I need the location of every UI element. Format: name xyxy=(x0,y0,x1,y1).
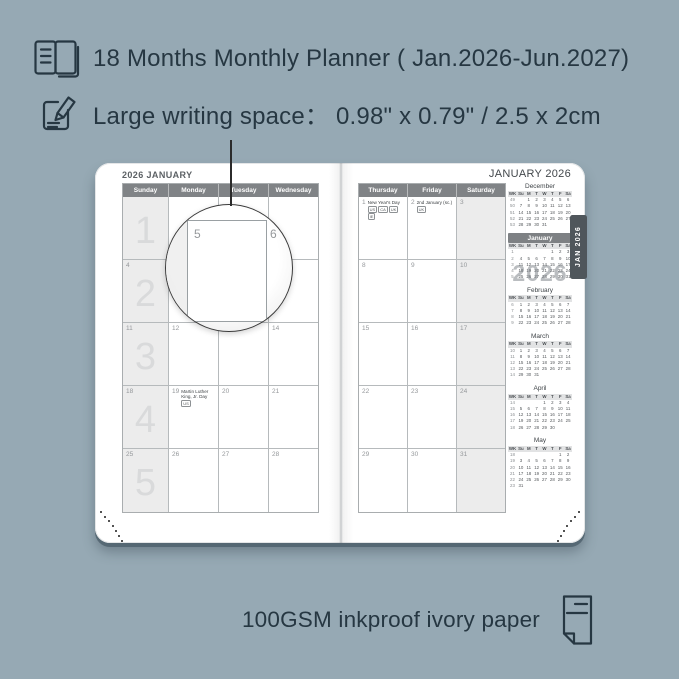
date-number: 4 xyxy=(126,262,130,269)
day-header-cell: Monday xyxy=(169,184,219,197)
day-header-cell: Wednesday xyxy=(269,184,318,197)
cell-content: 4 xyxy=(123,260,168,269)
holiday-badge: UK xyxy=(417,206,427,213)
mini-calendar-grid: WKSuMTWTFSa61234567789101112131481516171… xyxy=(508,295,572,326)
date-number: 10 xyxy=(460,262,467,269)
holiday-text: 2nd January (sc.) xyxy=(417,200,453,205)
mini-calendar: FebruaryWKSuMTWTFSa612345677891011121314… xyxy=(508,285,572,326)
calendar-day-cell: 29 xyxy=(359,449,408,512)
calendar-week-row: 293031 xyxy=(359,449,505,512)
mini-cal-date xyxy=(564,372,572,378)
day-header-row: ThursdayFridaySaturday xyxy=(359,184,505,197)
date-number: 21 xyxy=(272,388,279,395)
feature-line-planner-range: 18 Months Monthly Planner ( Jan.2026-Jun… xyxy=(32,38,629,80)
calendar-day-cell: 14 xyxy=(269,323,318,386)
date-number: 15 xyxy=(362,325,369,332)
corner-stitch-left xyxy=(118,535,120,537)
week-number-watermark: 5 xyxy=(123,455,168,512)
calendar-day-cell: 24 xyxy=(457,386,505,449)
calendar-day-cell: 1 xyxy=(123,197,169,260)
cell-content: 3 xyxy=(457,197,505,206)
feature-text-writing-space: Large writing space： 0.98" x 0.79" / 2.5… xyxy=(93,96,601,131)
mini-cal-date xyxy=(556,425,564,431)
calendar-week-row: 222324 xyxy=(359,386,505,449)
holiday-label: New Year's DayUSCAUKIE xyxy=(368,199,405,220)
cell-content: 15 xyxy=(359,323,407,332)
spread-spine xyxy=(329,163,353,543)
holiday-badge: US xyxy=(181,400,191,407)
mini-cal-date: 30 xyxy=(533,222,541,228)
right-month-grid: ThursdayFridaySaturday1New Year's DayUSC… xyxy=(358,183,506,513)
left-page-title: 2026 JANUARY xyxy=(122,170,193,180)
date-number: 17 xyxy=(460,325,467,332)
calendar-week-row: 1New Year's DayUSCAUKIE22nd January (sc.… xyxy=(359,197,505,260)
mini-calendar: MarchWKSuMTWTFSa101234567118910111213141… xyxy=(508,331,572,378)
mini-calendar-sidebar: DecemberWKSuMTWTFSa491234565078910111213… xyxy=(508,181,572,489)
cell-content xyxy=(169,197,218,199)
corner-stitch-right xyxy=(566,525,568,527)
mini-cal-date xyxy=(533,483,541,489)
cell-content: 11 xyxy=(123,323,168,332)
calendar-day-cell: 26 xyxy=(169,449,219,512)
calendar-week-row: 311121314 xyxy=(123,323,318,386)
cell-content: 23 xyxy=(408,386,456,395)
holiday-badge: CA xyxy=(378,206,388,213)
holiday-badges: UK xyxy=(417,207,428,212)
day-header-cell: Saturday xyxy=(457,184,505,197)
cell-content: 9 xyxy=(408,260,456,269)
cell-content: 16 xyxy=(408,323,456,332)
mini-cal-date: 28 xyxy=(533,425,541,431)
mini-cal-date: 31 xyxy=(541,222,549,228)
cell-content: 26 xyxy=(169,449,218,458)
mini-cal-date: 27 xyxy=(556,320,564,326)
corner-stitch-right xyxy=(557,540,559,542)
week-number-watermark: 1 xyxy=(123,203,168,259)
cell-content: 19Martin Luther King, Jr. DayUS xyxy=(169,386,218,407)
day-header-cell: Thursday xyxy=(359,184,408,197)
cell-content xyxy=(123,197,168,199)
mini-cal-week-number: 18 xyxy=(508,425,517,431)
day-header-row: SundayMondayTuesdayWednesday xyxy=(123,184,318,197)
mini-cal-date xyxy=(548,372,556,378)
cell-content: 17 xyxy=(457,323,505,332)
date-number: 1 xyxy=(362,199,366,220)
day-header-cell: Tuesday xyxy=(219,184,269,197)
corner-stitch-left xyxy=(115,530,117,532)
right-page-title: JANUARY 2026 xyxy=(489,168,571,180)
mini-cal-date xyxy=(548,222,556,228)
mini-cal-date: 28 xyxy=(564,320,572,326)
corner-stitch-right xyxy=(570,520,572,522)
mini-cal-date: 29 xyxy=(517,372,525,378)
calendar-week-row: 525262728 xyxy=(123,449,318,512)
corner-stitch-right xyxy=(578,511,580,513)
corner-stitch-left xyxy=(108,520,110,522)
day-header-cell: Friday xyxy=(408,184,457,197)
cell-content: 22 xyxy=(359,386,407,395)
mini-cal-date: 24 xyxy=(533,320,541,326)
cell-content: 31 xyxy=(457,449,505,458)
mini-calendar-title: January xyxy=(508,233,572,243)
paper-sheet-icon xyxy=(553,592,601,648)
mini-cal-date: 31 xyxy=(533,372,541,378)
mini-cal-date xyxy=(541,483,549,489)
cell-content: 28 xyxy=(269,449,318,458)
holiday-badges: USCAUKIE xyxy=(368,207,400,220)
mini-calendar-grid: WKSuMTWTFSa14123415567891011161213141516… xyxy=(508,394,572,431)
mini-calendar: AprilWKSuMTWTFSa141234155678910111612131… xyxy=(508,384,572,431)
cell-content: 25 xyxy=(123,449,168,458)
cell-content: 27 xyxy=(219,449,268,458)
date-number: 30 xyxy=(411,451,418,458)
calendar-day-cell: 30 xyxy=(408,449,457,512)
date-number: 9 xyxy=(411,262,415,269)
mini-cal-date xyxy=(541,372,549,378)
date-number: 28 xyxy=(272,451,279,458)
calendar-day-cell: 22 xyxy=(359,386,408,449)
mini-cal-date: 23 xyxy=(525,320,533,326)
corner-stitch-left xyxy=(100,511,102,513)
holiday-label: Martin Luther King, Jr. DayUS xyxy=(181,388,216,407)
mini-calendar-title: December xyxy=(508,181,572,191)
corner-stitch-left xyxy=(104,516,106,518)
cell-content: 24 xyxy=(457,386,505,395)
mini-calendar-grid: WKSuMTWTFSa18121934567892010111213141516… xyxy=(508,446,572,489)
week-number-watermark: 3 xyxy=(123,329,168,385)
corner-stitch-left xyxy=(121,540,123,542)
calendar-day-cell: 1New Year's DayUSCAUKIE xyxy=(359,197,408,260)
calendar-day-cell: 418 xyxy=(123,386,169,449)
corner-stitch-right xyxy=(574,516,576,518)
cell-content xyxy=(269,197,318,199)
calendar-day-cell: 16 xyxy=(408,323,457,386)
date-number: 27 xyxy=(222,451,229,458)
calendar-day-cell: 10 xyxy=(457,260,505,323)
calendar-day-cell: 31 xyxy=(457,449,505,512)
calendar-day-cell: 15 xyxy=(359,323,408,386)
calendar-day-cell: 12 xyxy=(169,323,219,386)
cell-content: 21 xyxy=(269,386,318,395)
holiday-badges: US xyxy=(181,401,192,406)
cell-content xyxy=(219,197,268,199)
week-number-watermark: 4 xyxy=(123,392,168,448)
date-number: 31 xyxy=(460,451,467,458)
magnifier-pointer-line xyxy=(230,140,232,206)
calendar-day-cell: 28 xyxy=(269,449,318,512)
calendar-day-cell: 23 xyxy=(408,386,457,449)
calendar-day-cell: 21 xyxy=(269,386,318,449)
product-image-canvas: 18 Months Monthly Planner ( Jan.2026-Jun… xyxy=(0,0,679,679)
mini-cal-date xyxy=(548,483,556,489)
week-number-watermark: 2 xyxy=(123,266,168,322)
mini-calendar-title: May xyxy=(508,436,572,446)
calendar-day-cell: 311 xyxy=(123,323,169,386)
mini-calendar-title: March xyxy=(508,331,572,341)
mini-cal-date: 26 xyxy=(548,320,556,326)
calendar-day-cell: 24 xyxy=(123,260,169,323)
magnified-sunday-column-shade xyxy=(166,205,187,331)
mini-cal-date: 27 xyxy=(525,425,533,431)
mini-cal-date xyxy=(556,222,564,228)
feature-text-planner-range: 18 Months Monthly Planner ( Jan.2026-Jun… xyxy=(93,45,629,73)
mini-cal-date: 25 xyxy=(541,320,549,326)
date-number: 8 xyxy=(362,262,366,269)
calendar-week-row: 41819Martin Luther King, Jr. DayUS2021 xyxy=(123,386,318,449)
feature-line-paper: 100GSM inkproof ivory paper xyxy=(242,592,601,648)
holiday-badge: UK xyxy=(389,206,399,213)
mini-calendar-grid: WKSuMTWTFSa10123456711891011121314121516… xyxy=(508,341,572,378)
cell-content: 14 xyxy=(269,323,318,332)
mini-calendar: MayWKSuMTWTFSa18121934567892010111213141… xyxy=(508,436,572,489)
mini-cal-week-number: 9 xyxy=(508,320,517,326)
date-number: 18 xyxy=(126,388,133,395)
magnified-date-5: 5 xyxy=(194,227,201,241)
date-number: 29 xyxy=(362,451,369,458)
mini-calendar-title: April xyxy=(508,384,572,394)
holiday-text: New Year's Day xyxy=(368,200,400,205)
holiday-badge: IE xyxy=(368,213,376,220)
year-watermark: 2026 xyxy=(500,260,580,287)
cell-content: 29 xyxy=(359,449,407,458)
mini-cal-date: 30 xyxy=(525,372,533,378)
cell-content: 8 xyxy=(359,260,407,269)
cell-content: 1New Year's DayUSCAUKIE xyxy=(359,197,407,220)
magnified-date-6: 6 xyxy=(270,227,277,241)
mini-cal-date xyxy=(525,483,533,489)
mini-cal-week-number: 53 xyxy=(508,222,517,228)
mini-calendar: DecemberWKSuMTWTFSa491234565078910111213… xyxy=(508,181,572,228)
calendar-day-cell: 525 xyxy=(123,449,169,512)
date-number: 11 xyxy=(126,325,133,332)
mini-cal-date: 29 xyxy=(525,222,533,228)
date-number: 3 xyxy=(460,199,464,206)
mini-cal-date: 29 xyxy=(541,425,549,431)
mini-cal-date: 26 xyxy=(517,425,525,431)
corner-stitch-right xyxy=(560,535,562,537)
cell-content: 20 xyxy=(219,386,268,395)
calendar-day-cell: 9 xyxy=(408,260,457,323)
date-number: 24 xyxy=(460,388,467,395)
date-number: 25 xyxy=(126,451,133,458)
cell-content: 10 xyxy=(457,260,505,269)
day-header-cell: Sunday xyxy=(123,184,169,197)
date-number: 2 xyxy=(411,199,415,213)
mini-cal-date: 28 xyxy=(517,222,525,228)
calendar-day-cell: 3 xyxy=(457,197,505,260)
mini-calendar-grid: WKSuMTWTFSa49123456507891011121351141516… xyxy=(508,191,572,228)
mini-cal-date xyxy=(556,483,564,489)
date-number: 20 xyxy=(222,388,229,395)
calendar-day-cell: 22nd January (sc.)UK xyxy=(408,197,457,260)
calendar-day-cell: 19Martin Luther King, Jr. DayUS xyxy=(169,386,219,449)
date-number: 16 xyxy=(411,325,418,332)
calendar-day-cell: 13 xyxy=(219,323,269,386)
holiday-label: 2nd January (sc.)UK xyxy=(417,199,454,213)
feature-line-writing-space: Large writing space： 0.98" x 0.79" / 2.5… xyxy=(38,92,601,134)
calendar-day-cell: 20 xyxy=(219,386,269,449)
mini-cal-date xyxy=(556,372,564,378)
date-number: 26 xyxy=(172,451,179,458)
holiday-text: Martin Luther King, Jr. Day xyxy=(181,389,208,400)
mini-cal-date xyxy=(564,425,572,431)
corner-stitch-right xyxy=(563,530,565,532)
corner-stitch-left xyxy=(112,525,114,527)
calendar-day-cell: 17 xyxy=(457,323,505,386)
writing-pencil-icon xyxy=(38,92,78,134)
cell-content: 18 xyxy=(123,386,168,395)
holiday-badge: US xyxy=(368,206,378,213)
feature-text-paper: 100GSM inkproof ivory paper xyxy=(242,607,540,633)
calendar-week-row: 8910 xyxy=(359,260,505,323)
mini-cal-week-number: 23 xyxy=(508,483,517,489)
mini-cal-date xyxy=(564,483,572,489)
date-number: 22 xyxy=(362,388,369,395)
mini-cal-date: 22 xyxy=(517,320,525,326)
date-number: 14 xyxy=(272,325,279,332)
calendar-day-cell: 27 xyxy=(219,449,269,512)
cell-content: 22nd January (sc.)UK xyxy=(408,197,456,213)
date-number: 19 xyxy=(172,388,179,407)
mini-cal-date: 30 xyxy=(548,425,556,431)
mini-cal-date: 31 xyxy=(517,483,525,489)
calendar-day-cell: 8 xyxy=(359,260,408,323)
date-number: 23 xyxy=(411,388,418,395)
mini-cal-week-number: 14 xyxy=(508,372,517,378)
magnifier-circle: 5 6 xyxy=(165,204,293,332)
cell-content: 30 xyxy=(408,449,456,458)
calendar-week-row: 151617 xyxy=(359,323,505,386)
open-planner-book-icon xyxy=(32,38,80,80)
